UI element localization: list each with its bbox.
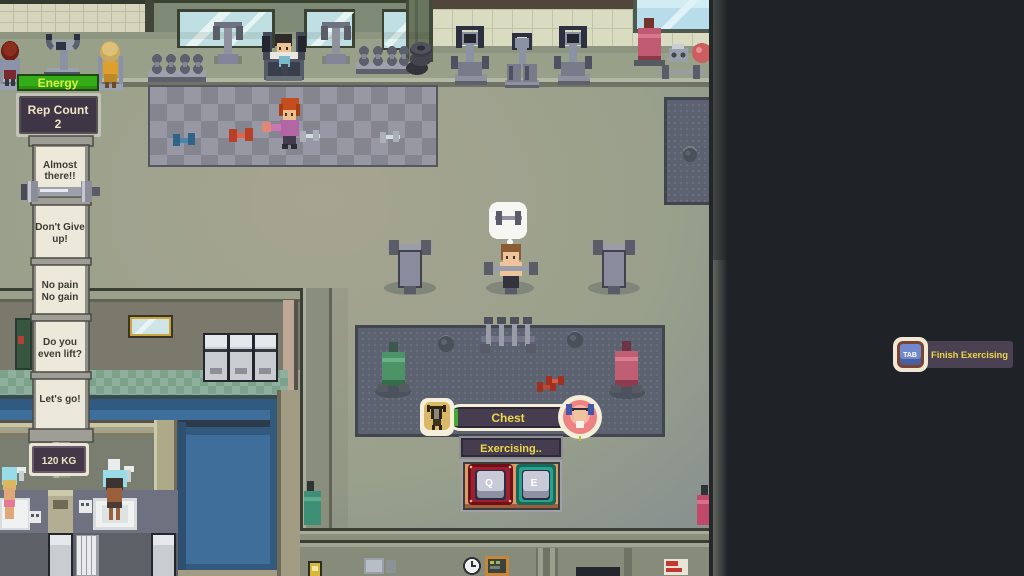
svg-text:No pain: No pain: [42, 280, 79, 291]
svg-text:Finish Exercising: Finish Exercising: [931, 350, 1008, 361]
svg-text:2: 2: [55, 117, 62, 131]
svg-text:Do you: Do you: [43, 337, 77, 348]
svg-text:up!: up!: [52, 234, 68, 245]
svg-text:E: E: [531, 478, 538, 489]
svg-text:TAB: TAB: [903, 352, 917, 359]
svg-text:Exercising..: Exercising..: [480, 443, 542, 455]
svg-text:there!!: there!!: [44, 171, 75, 182]
svg-text:Don't Give: Don't Give: [35, 222, 85, 233]
svg-text:Let's go!: Let's go!: [39, 394, 80, 405]
svg-text:Q: Q: [485, 478, 493, 489]
svg-text:Rep Count: Rep Count: [28, 103, 89, 117]
svg-text:120 KG: 120 KG: [42, 456, 77, 467]
svg-text:even lift?: even lift?: [38, 349, 82, 360]
svg-text:Chest: Chest: [491, 411, 524, 425]
svg-text:No gain: No gain: [42, 292, 79, 303]
svg-text:Energy: Energy: [38, 76, 79, 90]
svg-text:Almost: Almost: [43, 160, 78, 171]
